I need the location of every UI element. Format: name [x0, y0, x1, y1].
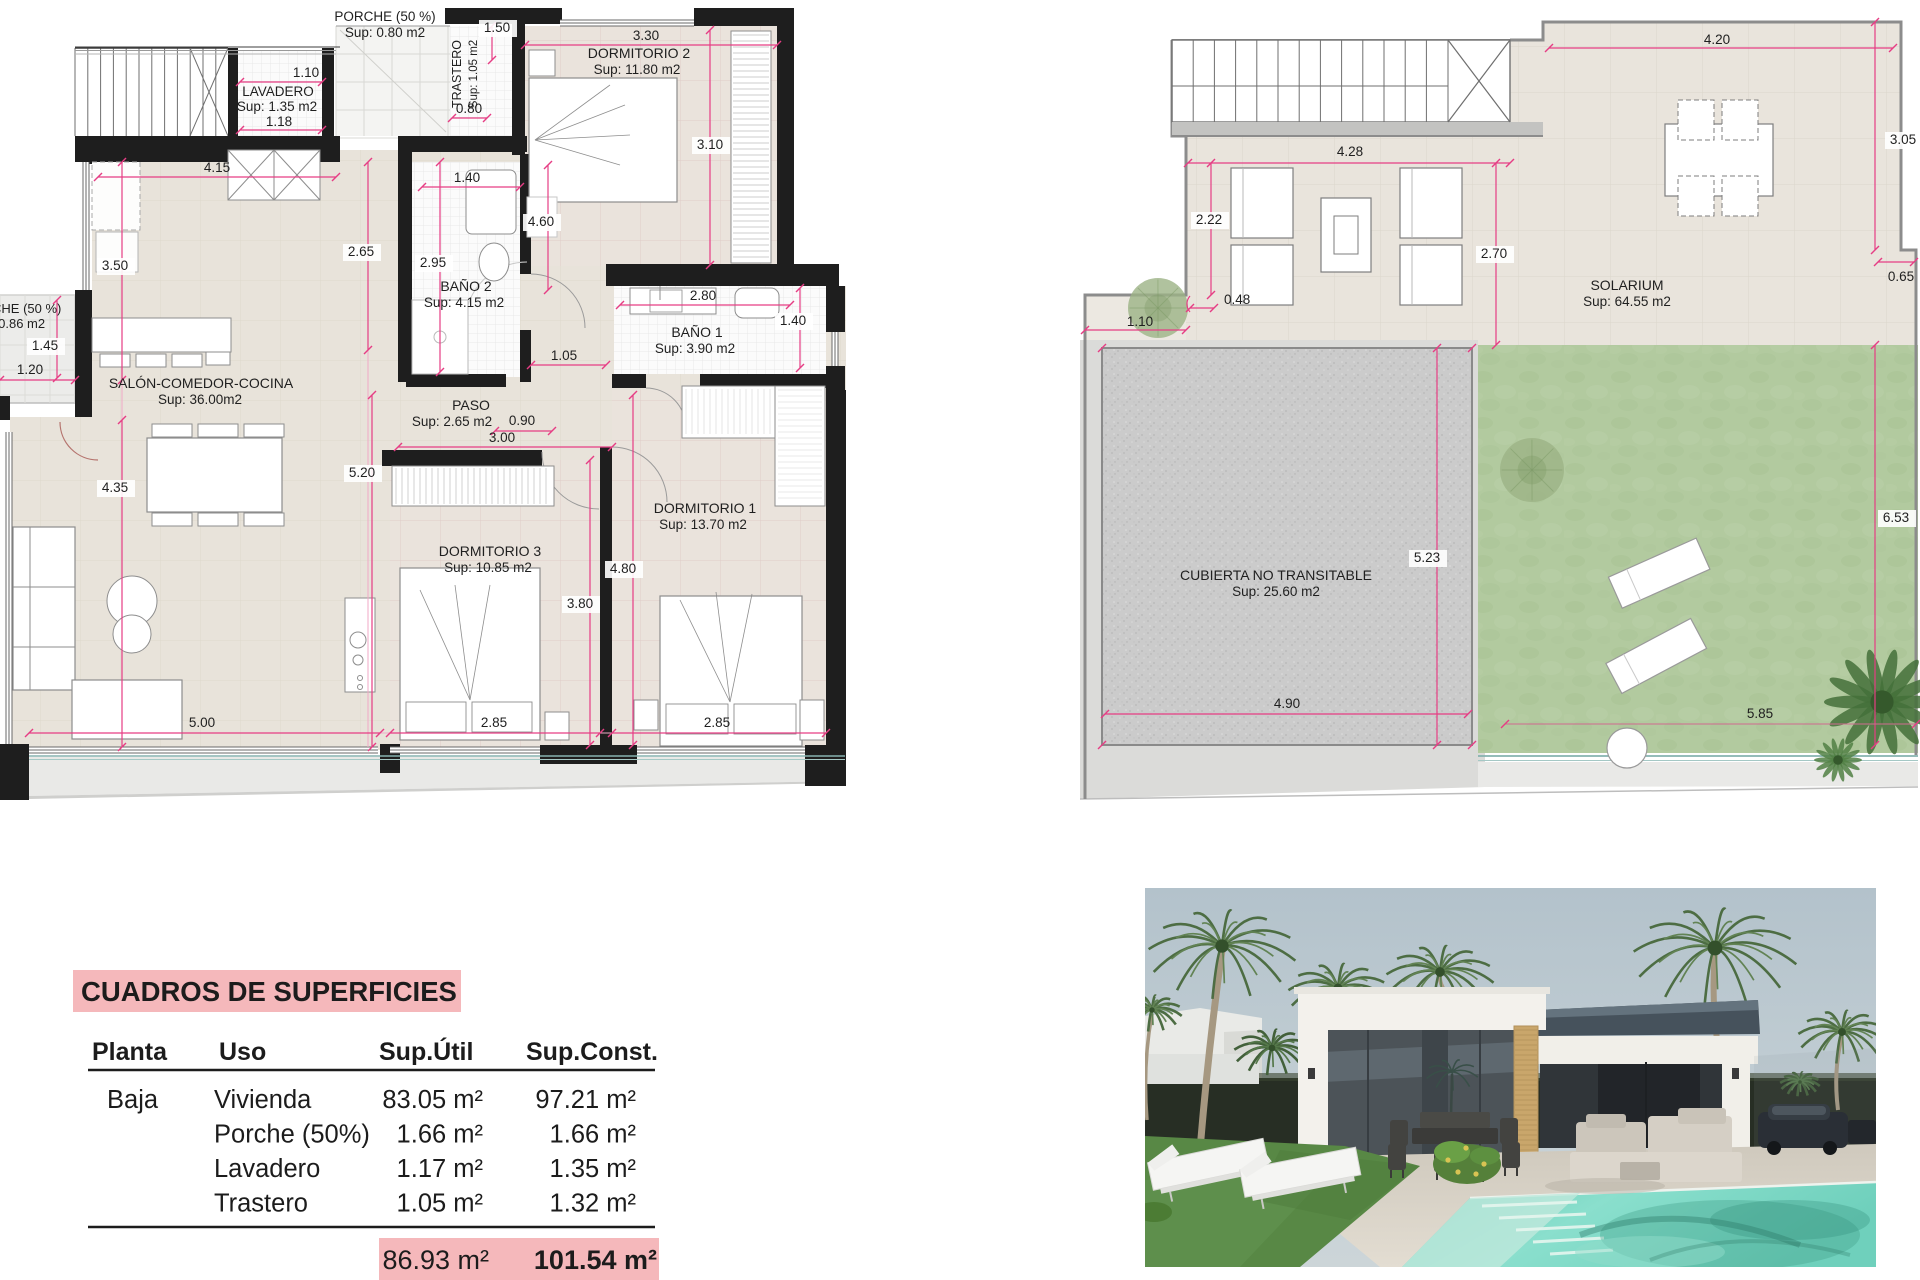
- svg-text:2.70: 2.70: [1481, 246, 1507, 261]
- svg-text:Sup: 1.05 m2: Sup: 1.05 m2: [468, 40, 480, 108]
- svg-text:3.05: 3.05: [1890, 132, 1916, 147]
- svg-text:Sup: 0.80 m2: Sup: 0.80 m2: [345, 25, 425, 40]
- svg-text:Sup: 11.80 m2: Sup: 11.80 m2: [594, 62, 681, 77]
- svg-text:Porche (50%): Porche (50%): [214, 1121, 370, 1149]
- svg-text:Trastero: Trastero: [214, 1190, 308, 1218]
- svg-text:1.45: 1.45: [32, 338, 58, 353]
- svg-text:SALÓN-COMEDOR-COCINA: SALÓN-COMEDOR-COCINA: [109, 375, 294, 391]
- svg-text:4.35: 4.35: [102, 480, 128, 495]
- svg-text:PORCHE (50 %): PORCHE (50 %): [334, 9, 435, 24]
- svg-text:Sup: 13.70 m2: Sup: 13.70 m2: [659, 517, 747, 532]
- svg-text:1.66 m²: 1.66 m²: [550, 1121, 636, 1149]
- svg-text:2.95: 2.95: [420, 255, 446, 270]
- svg-text:1.05: 1.05: [551, 348, 577, 363]
- svg-text:4.90: 4.90: [1274, 696, 1300, 711]
- svg-text:86.93 m²: 86.93 m²: [382, 1245, 489, 1275]
- svg-text:Sup: 25.60 m2: Sup: 25.60 m2: [1232, 584, 1320, 599]
- svg-text:5.20: 5.20: [349, 465, 375, 480]
- svg-text:PASO: PASO: [452, 397, 490, 413]
- svg-text:1.17 m²: 1.17 m²: [397, 1155, 483, 1183]
- svg-text:83.05 m²: 83.05 m²: [382, 1086, 483, 1114]
- svg-text:SOLARIUM: SOLARIUM: [1590, 277, 1663, 293]
- svg-text:TRASTERO: TRASTERO: [450, 40, 464, 108]
- svg-text:1.10: 1.10: [293, 65, 319, 80]
- svg-text:1.66 m²: 1.66 m²: [397, 1121, 483, 1149]
- svg-text:5.23: 5.23: [1414, 550, 1440, 565]
- svg-text:BAÑO 2: BAÑO 2: [440, 278, 492, 294]
- svg-text:2.85: 2.85: [704, 715, 730, 730]
- svg-text:4.15: 4.15: [204, 160, 230, 175]
- svg-text:1.05 m²: 1.05 m²: [397, 1190, 483, 1218]
- svg-text:0.65: 0.65: [1888, 269, 1914, 284]
- svg-text:1.40: 1.40: [780, 313, 806, 328]
- svg-text:6.53: 6.53: [1883, 510, 1909, 525]
- svg-text:4.60: 4.60: [528, 214, 554, 229]
- svg-text:CUADROS DE SUPERFICIES: CUADROS DE SUPERFICIES: [81, 976, 457, 1007]
- svg-text:Sup: 10.85 m2: Sup: 10.85 m2: [444, 560, 532, 575]
- svg-text:Baja: Baja: [107, 1086, 159, 1114]
- svg-text:5.00: 5.00: [189, 715, 215, 730]
- svg-text:Sup.Const.: Sup.Const.: [526, 1038, 658, 1066]
- svg-text:Vivienda: Vivienda: [214, 1086, 312, 1114]
- svg-text:4.28: 4.28: [1337, 144, 1363, 159]
- svg-text:Lavadero: Lavadero: [214, 1155, 320, 1183]
- svg-text:DORMITORIO 2: DORMITORIO 2: [588, 45, 691, 61]
- svg-text:Uso: Uso: [219, 1038, 266, 1066]
- svg-text:2.22: 2.22: [1196, 212, 1222, 227]
- svg-text:Sup: 4.15 m2: Sup: 4.15 m2: [424, 295, 504, 310]
- svg-text:97.21 m²: 97.21 m²: [535, 1086, 636, 1114]
- svg-text:3.30: 3.30: [633, 28, 659, 43]
- svg-text:Sup: 3.90 m2: Sup: 3.90 m2: [655, 341, 735, 356]
- svg-text:RCHE (50 %): RCHE (50 %): [0, 301, 61, 316]
- svg-text:1.10: 1.10: [1127, 314, 1153, 329]
- svg-text:3.50: 3.50: [102, 258, 128, 273]
- svg-text:BAÑO 1: BAÑO 1: [671, 324, 723, 340]
- svg-text:DORMITORIO 3: DORMITORIO 3: [439, 543, 542, 559]
- svg-text:4.20: 4.20: [1704, 32, 1730, 47]
- svg-text:2.80: 2.80: [690, 288, 716, 303]
- svg-text:3.10: 3.10: [697, 137, 723, 152]
- svg-text:2.85: 2.85: [481, 715, 507, 730]
- svg-text:1.32 m²: 1.32 m²: [550, 1190, 636, 1218]
- svg-text:DORMITORIO 1: DORMITORIO 1: [654, 500, 757, 516]
- svg-text:Sup: 1.35 m2: Sup: 1.35 m2: [237, 99, 317, 114]
- svg-text:0.90: 0.90: [509, 413, 535, 428]
- svg-text:Sup: 36.00m2: Sup: 36.00m2: [158, 392, 242, 407]
- svg-text:4.80: 4.80: [610, 561, 636, 576]
- svg-text:Sup: 2.65 m2: Sup: 2.65 m2: [412, 414, 492, 429]
- svg-text:1.50: 1.50: [484, 20, 510, 35]
- svg-text:Sup: 64.55 m2: Sup: 64.55 m2: [1583, 294, 1671, 309]
- svg-text:101.54 m²: 101.54 m²: [534, 1245, 657, 1275]
- svg-text:Planta: Planta: [92, 1038, 168, 1066]
- svg-text:3.80: 3.80: [567, 596, 593, 611]
- svg-text:LAVADERO: LAVADERO: [242, 84, 314, 99]
- svg-text:1.35 m²: 1.35 m²: [550, 1155, 636, 1183]
- svg-text:3.00: 3.00: [489, 430, 515, 445]
- svg-text:0.48: 0.48: [1224, 292, 1250, 307]
- svg-text:1.20: 1.20: [17, 362, 43, 377]
- svg-text:5.85: 5.85: [1747, 706, 1773, 721]
- svg-text:Sup.Útil: Sup.Útil: [379, 1036, 473, 1066]
- svg-text:1.18: 1.18: [266, 114, 292, 129]
- svg-text:1.40: 1.40: [454, 170, 480, 185]
- svg-text:: 0.86 m2: : 0.86 m2: [0, 316, 45, 331]
- svg-text:CUBIERTA NO TRANSITABLE: CUBIERTA NO TRANSITABLE: [1180, 567, 1372, 583]
- svg-text:2.65: 2.65: [348, 244, 374, 259]
